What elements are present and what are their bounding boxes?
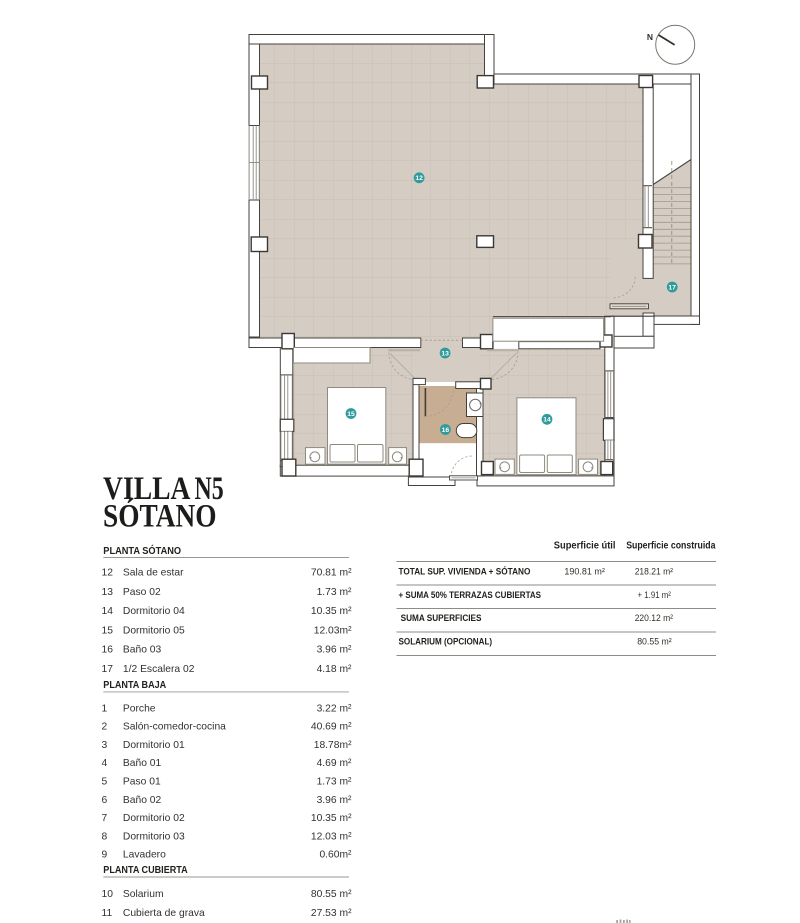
svg-text:13: 13 xyxy=(102,587,114,598)
svg-text:Baño 02: Baño 02 xyxy=(123,795,162,806)
svg-text:18.78m²: 18.78m² xyxy=(314,740,352,751)
svg-text:218.21 m²: 218.21 m² xyxy=(635,566,674,577)
svg-text:Dormitorio 02: Dormitorio 02 xyxy=(123,813,185,824)
svg-text:Paso 01: Paso 01 xyxy=(123,777,161,788)
svg-text:SUMA SUPERFICIES: SUMA SUPERFICIES xyxy=(401,612,482,623)
svg-text:Salón-comedor-cocina: Salón-comedor-cocina xyxy=(123,722,226,733)
svg-text:Dormitorio 01: Dormitorio 01 xyxy=(123,740,185,751)
svg-text:Dormitorio 03: Dormitorio 03 xyxy=(123,831,185,842)
svg-text:+ SUMA 50% TERRAZAS CUBIERTAS: + SUMA 50% TERRAZAS CUBIERTAS xyxy=(399,589,542,600)
svg-text:16: 16 xyxy=(102,645,114,656)
svg-text:PLANTA CUBIERTA: PLANTA CUBIERTA xyxy=(103,865,187,876)
svg-text:SOLARIUM (OPCIONAL): SOLARIUM (OPCIONAL) xyxy=(399,636,493,647)
svg-text:SÓTANO: SÓTANO xyxy=(103,497,217,535)
svg-text:Superficie útil: Superficie útil xyxy=(554,541,616,552)
svg-text:Cubierta de grava: Cubierta de grava xyxy=(123,908,205,919)
svg-text:3: 3 xyxy=(102,740,108,751)
svg-text:14: 14 xyxy=(102,606,114,617)
svg-text:1.73 m²: 1.73 m² xyxy=(317,777,352,788)
svg-text:9: 9 xyxy=(102,850,108,861)
svg-text:70.81 m²: 70.81 m² xyxy=(311,568,352,579)
svg-text:4: 4 xyxy=(102,758,108,769)
svg-text:Dormitorio 04: Dormitorio 04 xyxy=(123,606,185,617)
svg-text:12.03m²: 12.03m² xyxy=(314,625,352,636)
svg-text:17: 17 xyxy=(668,284,676,291)
svg-text:1: 1 xyxy=(102,703,108,714)
svg-text:12: 12 xyxy=(102,568,114,579)
svg-text:TOTAL SUP. VIVIENDA + SÓTANO: TOTAL SUP. VIVIENDA + SÓTANO xyxy=(399,565,531,576)
svg-text:5: 5 xyxy=(102,777,108,788)
svg-text:Baño 01: Baño 01 xyxy=(123,758,162,769)
svg-text:10.35 m²: 10.35 m² xyxy=(311,606,352,617)
svg-text:3.96 m²: 3.96 m² xyxy=(317,795,352,806)
svg-text:40.69 m²: 40.69 m² xyxy=(311,722,352,733)
svg-text:12: 12 xyxy=(415,175,423,182)
svg-text:PLANTA SÓTANO: PLANTA SÓTANO xyxy=(103,544,181,557)
svg-text:3.22 m²: 3.22 m² xyxy=(317,703,352,714)
svg-text:15: 15 xyxy=(347,411,355,418)
svg-text:13: 13 xyxy=(441,350,449,357)
svg-text:11: 11 xyxy=(102,908,113,919)
svg-text:PLANTA BAJA: PLANTA BAJA xyxy=(103,680,166,691)
svg-text:Baño 03: Baño 03 xyxy=(123,645,162,656)
svg-text:12.03 m²: 12.03 m² xyxy=(311,831,352,842)
svg-text:10: 10 xyxy=(102,889,114,900)
svg-text:1/2 Escalera 02: 1/2 Escalera 02 xyxy=(123,664,195,675)
svg-text:190.81 m²: 190.81 m² xyxy=(564,566,605,577)
svg-text:Solarium: Solarium xyxy=(123,889,164,900)
svg-text:6: 6 xyxy=(102,795,108,806)
svg-text:10.35 m²: 10.35 m² xyxy=(311,813,352,824)
svg-text:16: 16 xyxy=(442,427,450,434)
svg-text:Paso 02: Paso 02 xyxy=(123,587,161,598)
svg-text:15: 15 xyxy=(102,625,114,636)
svg-text:Lavadero: Lavadero xyxy=(123,850,166,861)
svg-text:3.96 m²: 3.96 m² xyxy=(317,645,352,656)
svg-text:Dormitorio 05: Dormitorio 05 xyxy=(123,625,185,636)
svg-text:0.60m²: 0.60m² xyxy=(319,850,352,861)
svg-text:1.73 m²: 1.73 m² xyxy=(317,587,352,598)
svg-text:80.55 m²: 80.55 m² xyxy=(637,637,672,648)
svg-text:4.18 m²: 4.18 m² xyxy=(317,664,352,675)
svg-text:2: 2 xyxy=(102,722,108,733)
svg-text:17: 17 xyxy=(102,664,114,675)
svg-text:80.55 m²: 80.55 m² xyxy=(311,889,352,900)
svg-text:7: 7 xyxy=(102,813,108,824)
svg-text:Porche: Porche xyxy=(123,703,156,714)
svg-text:14: 14 xyxy=(543,417,551,424)
svg-text:Sala de estar: Sala de estar xyxy=(123,568,184,579)
svg-text:Superficie construida: Superficie construida xyxy=(626,541,716,552)
svg-text:220.12 m²: 220.12 m² xyxy=(635,613,674,624)
svg-text:+ 1.91 m²: + 1.91 m² xyxy=(638,590,672,601)
svg-text:27.53 m²: 27.53 m² xyxy=(311,908,352,919)
svg-text:8: 8 xyxy=(102,831,108,842)
svg-text:4.69 m²: 4.69 m² xyxy=(317,758,352,769)
svg-text:N: N xyxy=(647,32,653,42)
